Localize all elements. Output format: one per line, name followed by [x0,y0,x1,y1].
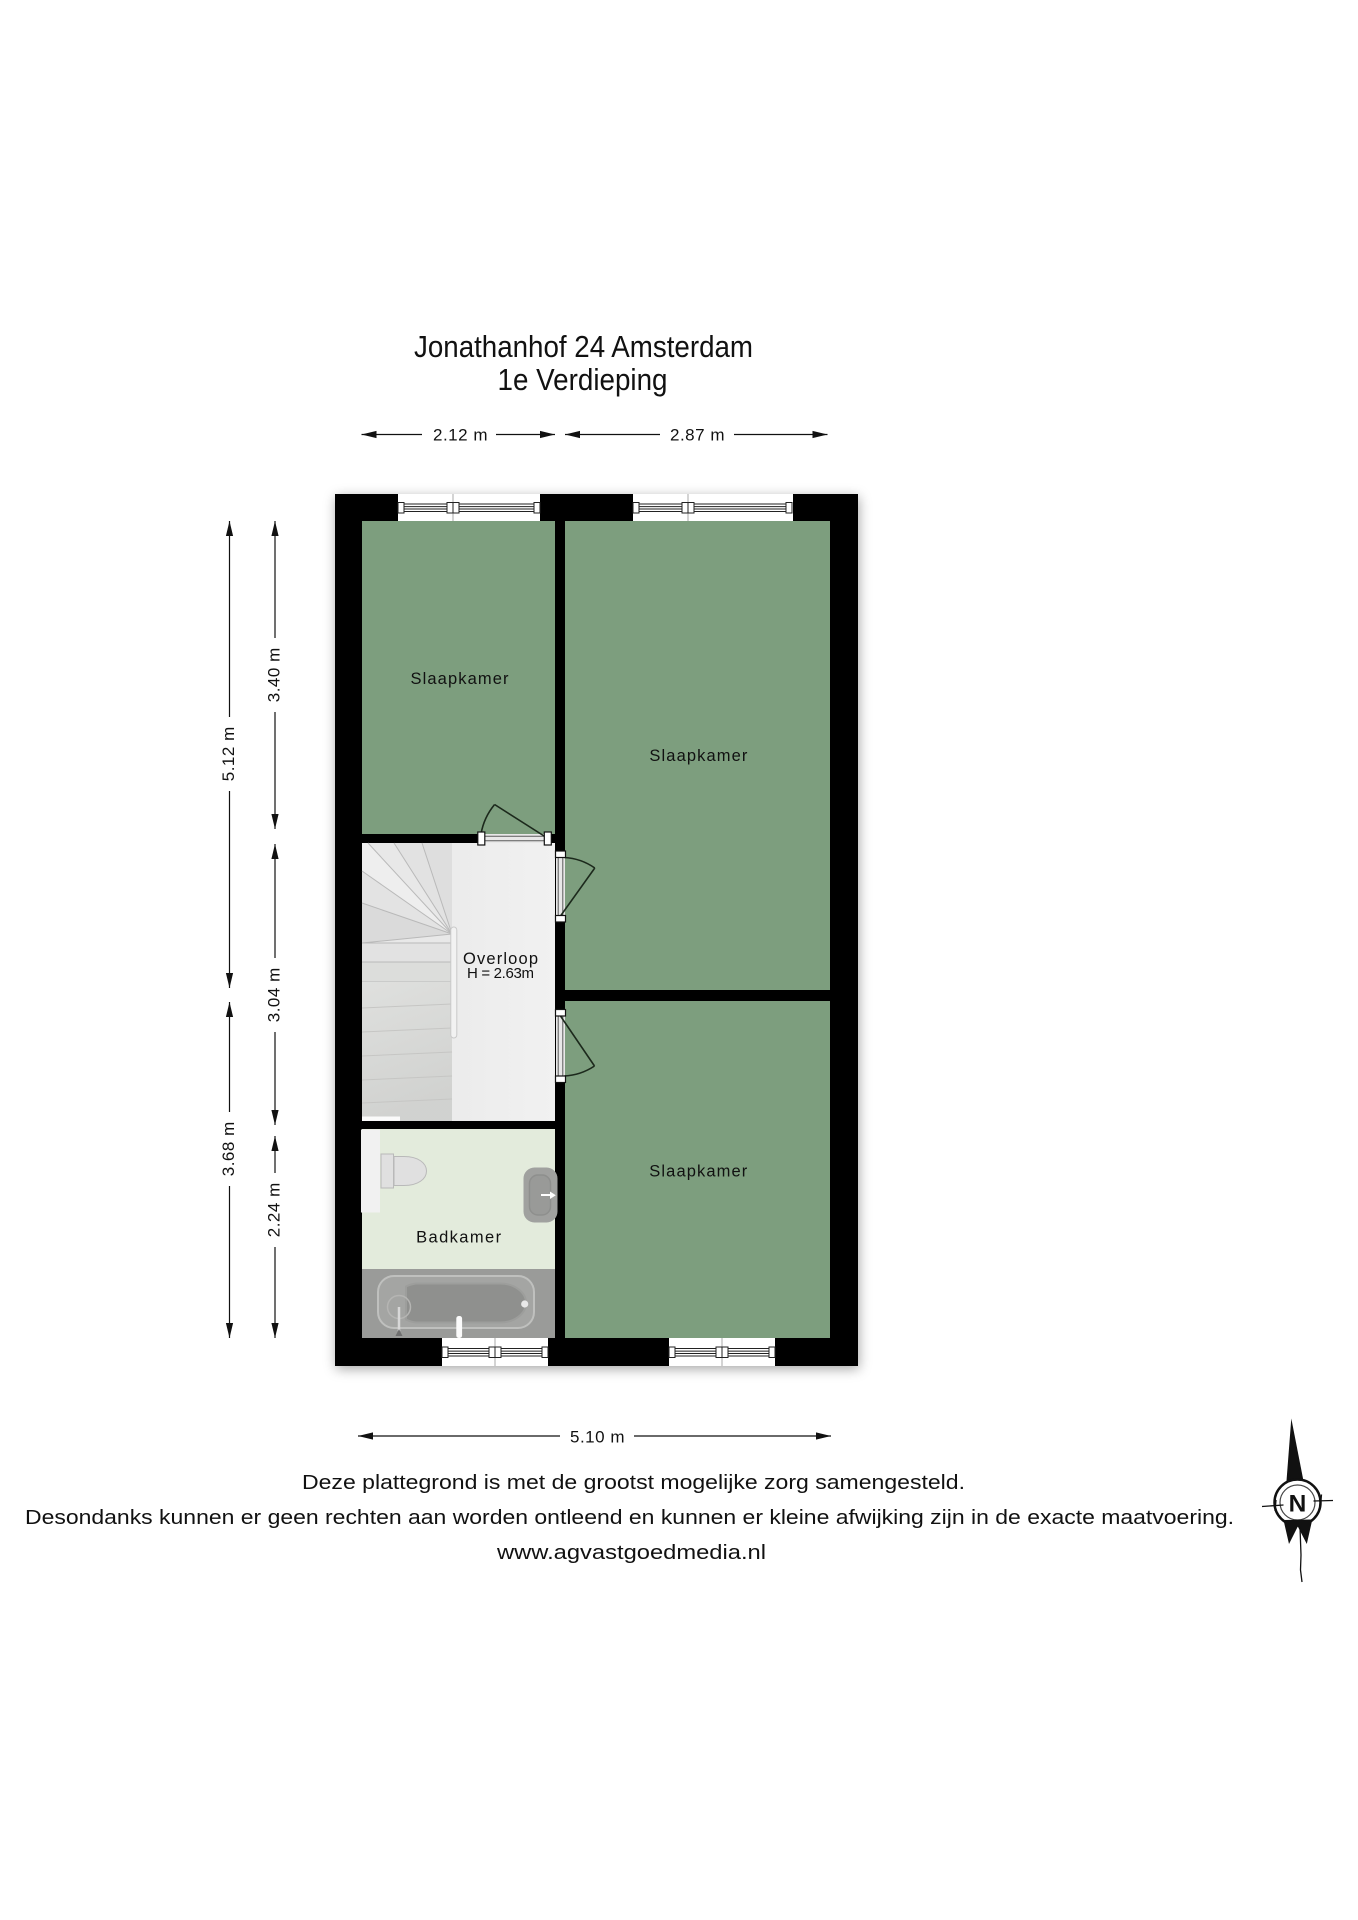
svg-text:2.12 m: 2.12 m [433,426,488,445]
svg-text:N: N [1289,1491,1307,1518]
svg-text:Slaapkamer: Slaapkamer [411,670,510,688]
svg-text:5.10 m: 5.10 m [570,1428,625,1447]
svg-text:H = 2.63m: H = 2.63m [467,965,534,982]
svg-text:Slaapkamer: Slaapkamer [649,1163,748,1181]
svg-text:Badkamer: Badkamer [416,1229,501,1247]
svg-text:3.40 m: 3.40 m [264,648,283,703]
svg-text:2.24 m: 2.24 m [264,1183,283,1238]
svg-text:Slaapkamer: Slaapkamer [649,747,748,765]
svg-text:3.04 m: 3.04 m [264,968,283,1023]
svg-text:www.agvastgoedmedia.nl: www.agvastgoedmedia.nl [496,1542,766,1564]
svg-text:Desondanks kunnen er geen rech: Desondanks kunnen er geen rechten aan wo… [25,1507,1234,1529]
svg-text:2.87 m: 2.87 m [670,426,725,445]
svg-text:3.68 m: 3.68 m [219,1122,238,1177]
svg-text:1e Verdieping: 1e Verdieping [498,362,668,397]
svg-text:Deze plattegrond is met de gro: Deze plattegrond is met de grootst mogel… [302,1472,965,1494]
svg-text:Jonathanhof 24 Amsterdam: Jonathanhof 24 Amsterdam [414,329,753,364]
svg-text:5.12 m: 5.12 m [219,727,238,782]
